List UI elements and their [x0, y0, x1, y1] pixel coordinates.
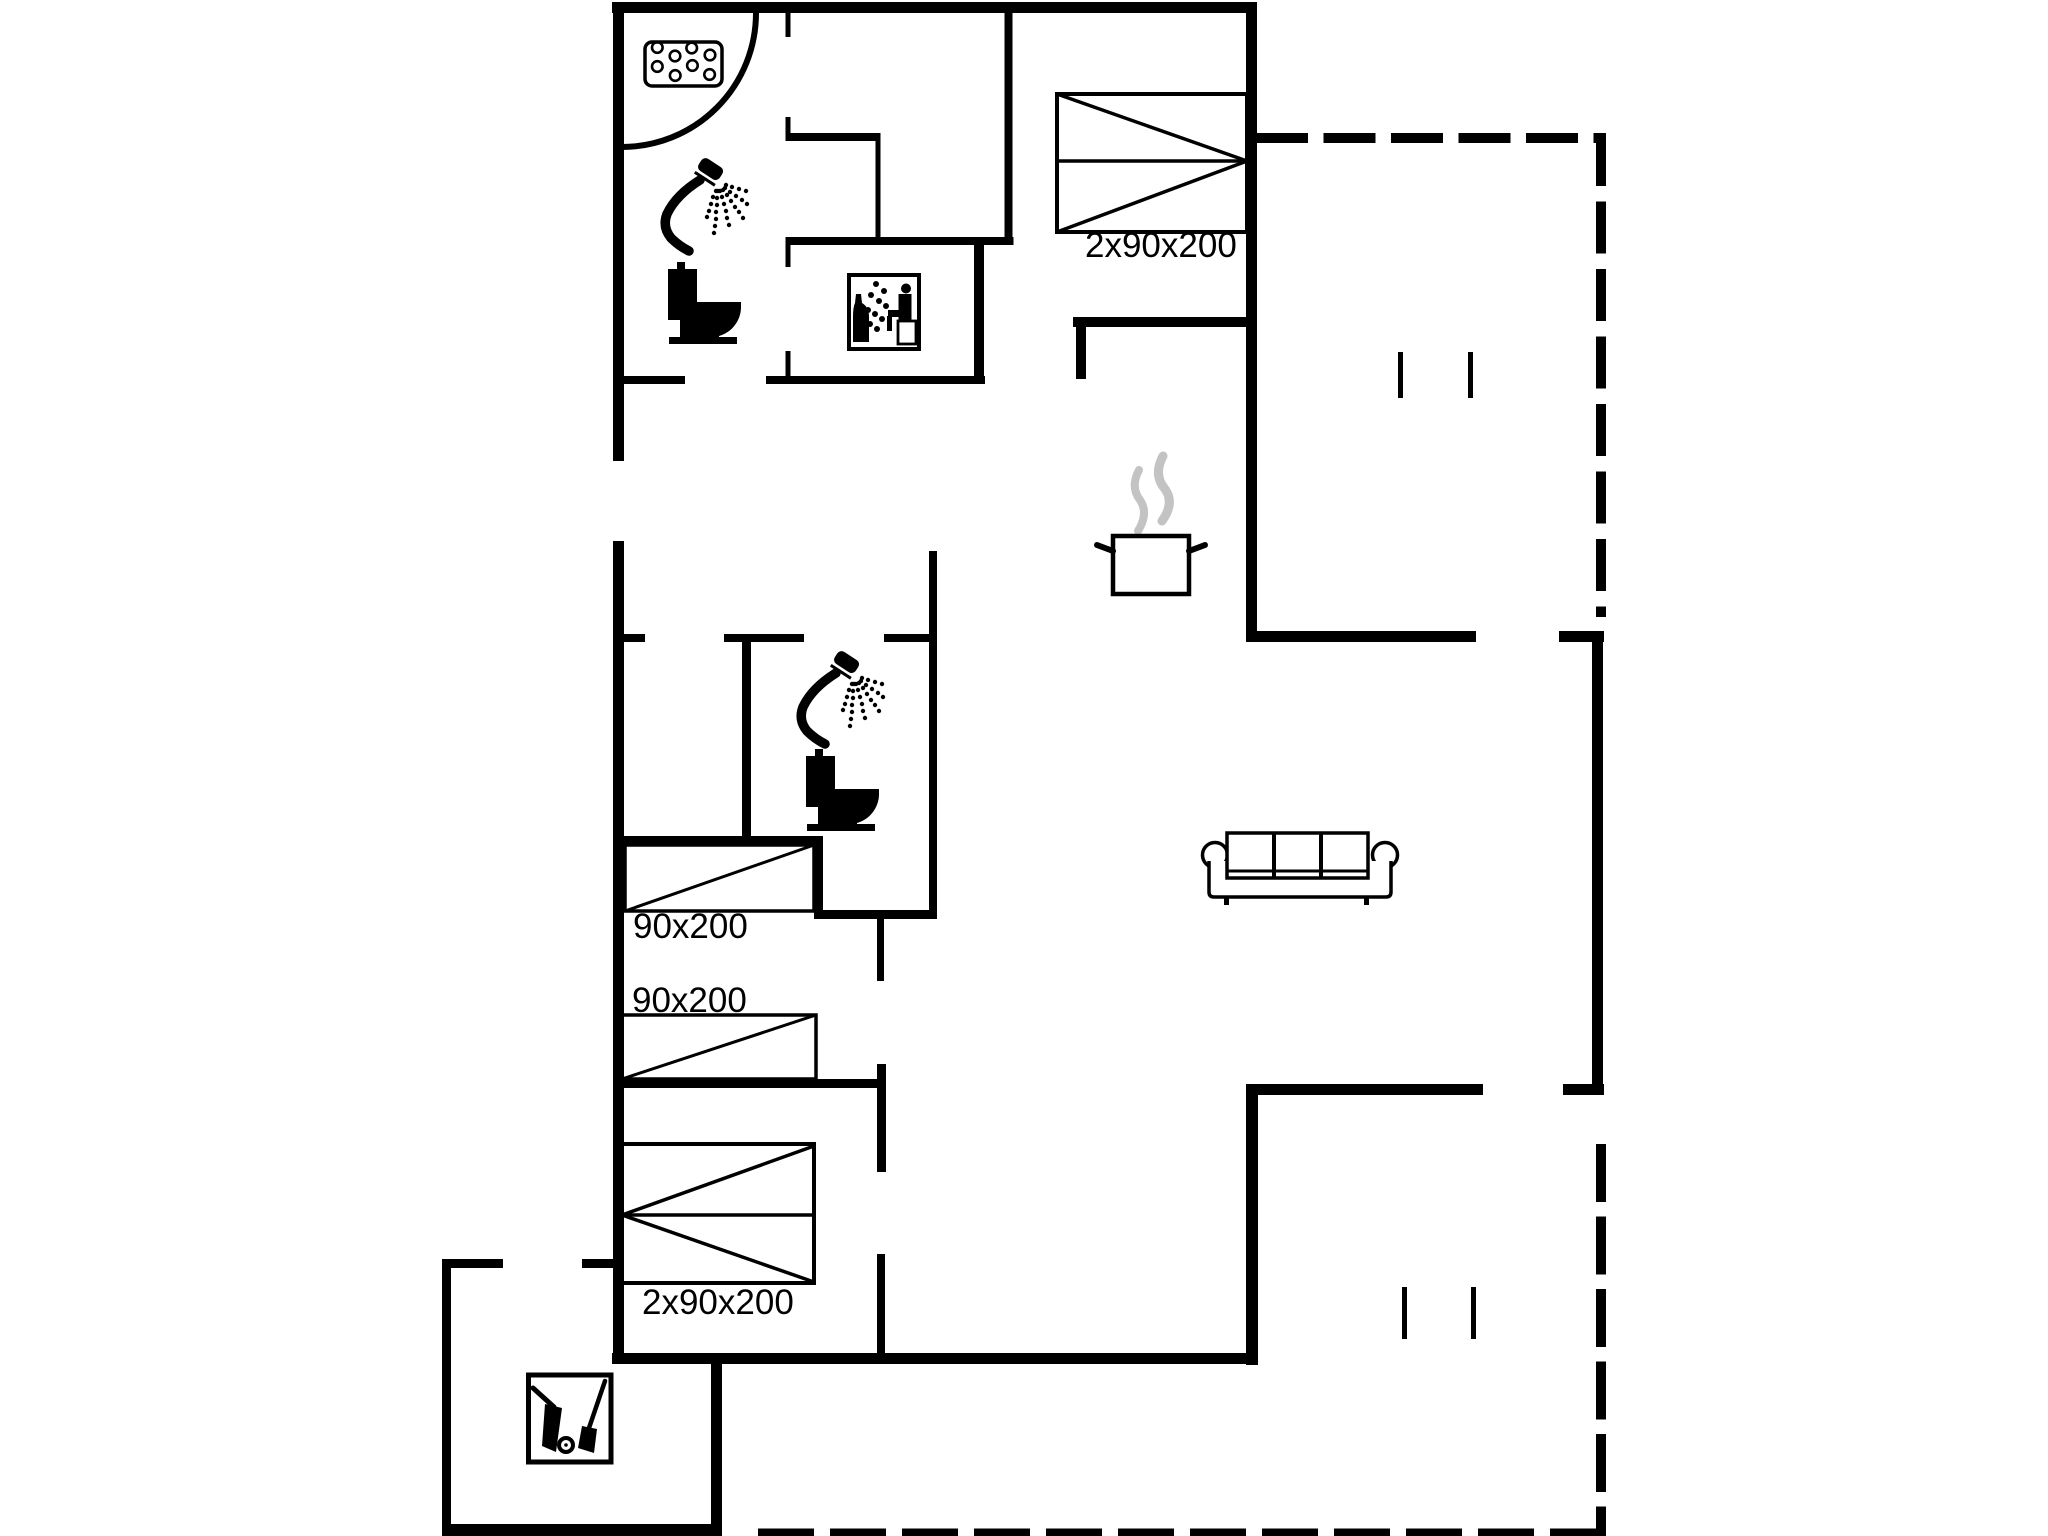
svg-text:90x200: 90x200: [633, 907, 748, 946]
svg-text:2x90x200: 2x90x200: [1085, 226, 1237, 265]
svg-text:90x200: 90x200: [632, 981, 747, 1020]
svg-text:2x90x200: 2x90x200: [642, 1283, 794, 1322]
